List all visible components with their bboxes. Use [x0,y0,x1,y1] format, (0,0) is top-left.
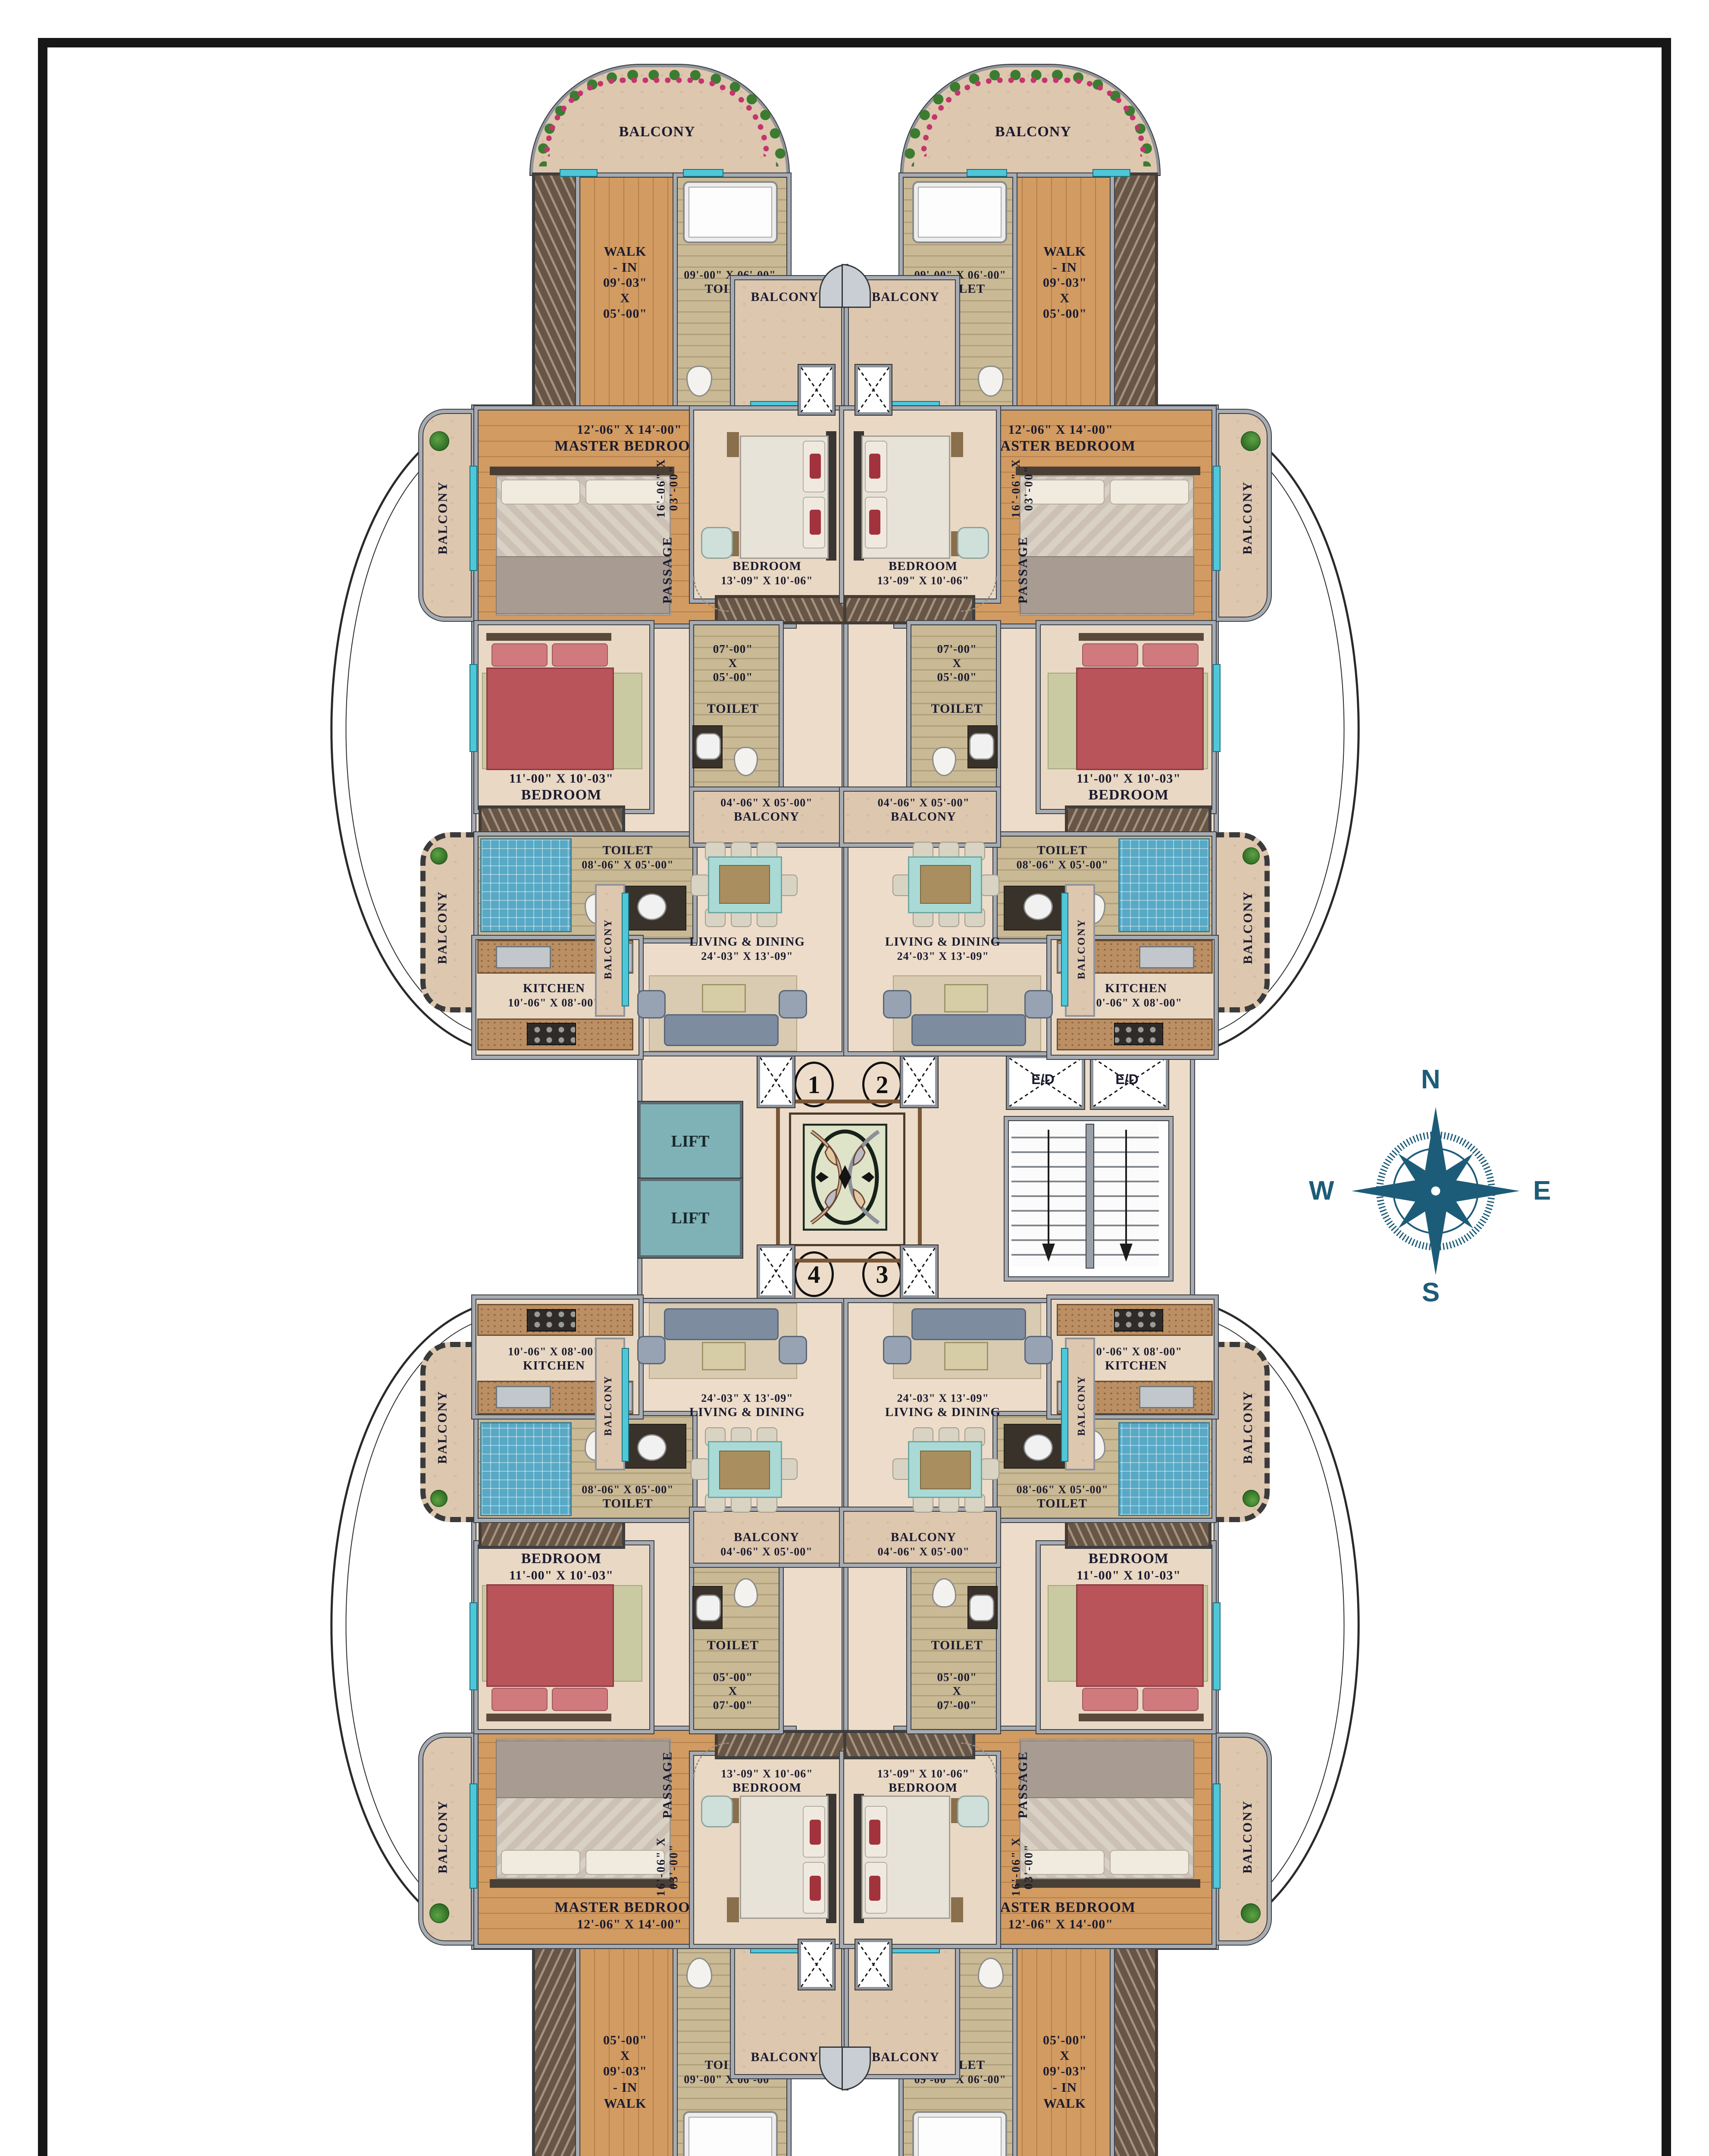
passage-label: PASSAGE 16'-06" X 03'-00" [648,1751,687,1915]
dining-table-top [920,1451,971,1489]
red-cushion [810,454,821,479]
red-cushion [869,1820,880,1845]
window-strip [622,1348,629,1462]
side-bedroom-label: 11'-00" X 10'-03" BEDROOM [1055,1550,1203,1584]
shaft-balcony-label: 04'-06" X 05'-00" BALCONY [851,793,996,827]
wardrobe [716,596,846,624]
walk-in-label: WALK - IN 09'-03" X 05'-00" [1022,2022,1108,2122]
tree-icon [429,431,449,451]
armchair-icon [637,990,666,1018]
axis-arch-half [842,264,871,308]
stove-icon [527,1309,576,1332]
sink-icon [637,1434,667,1461]
pillow [501,479,580,505]
side-balcony-upper-label: BALCONY [1233,479,1261,556]
tower-arch-balcony-label: BALCONY [968,122,1098,141]
floor-plan-canvas: 1 2 4 3 LIFT LIFT DN UP E/D E/D [0,0,1709,2156]
master-bed-throw [1020,556,1194,614]
tree-icon [1243,1490,1260,1507]
red-cushion [869,1876,880,1901]
center-toilet-name-label: TOILET [692,1636,773,1655]
master-bed-throw [496,1740,670,1798]
pillow [1082,1688,1138,1711]
bathtub-icon [683,2111,778,2156]
window-strip [470,1783,477,1889]
stove-icon [1114,1023,1163,1045]
dining-chair [691,874,710,896]
bedside-table [951,432,963,457]
wardrobe [479,1520,624,1548]
red-cushion [810,1876,821,1901]
red-cushion [810,1820,821,1845]
bedside-table [727,432,739,457]
window-strip [1213,664,1221,752]
shaft-duct-icon [798,1940,835,1990]
master-bed-headboard [490,467,674,475]
window-strip [1061,893,1068,1006]
master-bed-headboard [490,1879,674,1888]
armchair-icon [1024,1336,1053,1364]
shaft-duct-icon [855,365,892,415]
walk-in-wardrobe-strip [1111,173,1157,409]
window-strip [1213,466,1221,571]
living-balcony-label: BALCONY [598,910,619,987]
side-balcony-lower-label: BALCONY [429,1388,456,1466]
pillow [501,1850,580,1875]
window-strip [1213,1783,1221,1889]
walk-in-label: WALK - IN 09'-03" X 05'-00" [582,233,668,332]
tower-arch-balcony-label: BALCONY [592,122,722,141]
tree-icon [430,847,448,865]
window-strip [470,1602,477,1690]
unit-quadrant-4: BALCONY BALCONY BALCONY WALK - IN 09'-03… [0,1176,846,2156]
bed-headboard [486,1714,611,1721]
shower-mosaic [1118,1422,1210,1516]
side-toilet-label: TOILET 08'-06" X 05'-00" [570,1480,685,1514]
bed-headboard [1079,1714,1204,1721]
bathtub-icon [912,2111,1007,2156]
stove-icon [527,1023,576,1045]
kitchen-sink-icon [1139,1386,1194,1408]
sink-icon [637,893,667,920]
master-bed-headboard [1016,467,1200,475]
red-bed [1076,667,1204,770]
side-bedroom-label: 11'-00" X 10'-03" BEDROOM [1055,770,1203,805]
center-toilet-name-label: TOILET [692,699,773,718]
walk-in-wardrobe-strip [533,173,579,409]
dining-table-top [920,865,971,904]
window-strip [1213,1602,1221,1690]
axis-arch-half [842,2046,871,2090]
shower-mosaic [480,1422,572,1516]
living-dining-label: LIVING & DINING 24'-03" X 13'-09" [673,931,822,966]
living-balcony-label: BALCONY [1071,910,1092,987]
sink-icon [696,1595,721,1621]
sink-icon [969,1595,994,1621]
living-dining-label: LIVING & DINING 24'-03" X 13'-09" [868,1388,1017,1423]
walk-in-wardrobe-strip [1111,1946,1157,2156]
pillow [552,1688,608,1711]
pillow [1082,643,1138,667]
red-bed [1076,1584,1204,1687]
armchair-icon [779,990,807,1018]
pillow [1142,643,1199,667]
red-bed [486,1584,614,1687]
tree-icon [430,1490,448,1507]
center-toilet-dim-label: 07'-00" X 05'-00" [692,1657,773,1726]
center-toilet-name-label: TOILET [917,1636,998,1655]
window-strip [1092,169,1130,177]
side-balcony-upper-label: BALCONY [429,479,457,556]
sofa [664,1308,779,1340]
side-toilet-label: TOILET 08'-06" X 05'-00" [1005,840,1120,874]
window-strip [1061,1348,1068,1462]
sink-icon [969,733,994,760]
wardrobe [1066,1520,1211,1548]
passage-label: PASSAGE 16'-06" X 03'-00" [648,440,687,604]
wardrobe [844,1731,974,1758]
wardrobe [1066,806,1211,835]
side-balcony-upper-label: BALCONY [429,1798,457,1876]
armchair-icon [883,1336,911,1364]
armchair-icon [957,1796,989,1827]
wardrobe [844,596,974,624]
bed-headboard [486,633,611,641]
dining-table-top [719,865,770,904]
red-cushion [869,454,880,479]
window-strip [967,169,1007,177]
window-strip [470,466,477,571]
bed-headboard [1079,633,1204,641]
side-balcony-lower-label: BALCONY [1234,1388,1261,1466]
master-bed-headboard [1016,1879,1200,1888]
shaft-balcony-label: 04'-06" X 05'-00" BALCONY [694,793,839,827]
walk-in-label: WALK - IN 09'-03" X 05'-00" [1022,233,1108,332]
sofa [911,1014,1026,1046]
coffee-table [944,984,988,1012]
dining-chair [691,1458,710,1480]
shaft-balcony-label: 04'-06" X 05'-00" BALCONY [694,1527,839,1561]
dining-chair [980,874,999,896]
living-balcony-label: BALCONY [598,1367,619,1445]
center-toilet-dim-label: 07'-00" X 05'-00" [917,629,998,698]
living-balcony-label: BALCONY [1071,1367,1092,1445]
window-strip [622,893,629,1006]
side-balcony-lower-label: BALCONY [429,888,456,966]
bathtub-icon [912,181,1007,243]
coffee-table [702,1342,746,1370]
center-toilet-dim-label: 07'-00" X 05'-00" [692,629,773,698]
unit-quadrant-1: BALCONY BALCONY BALCONY WALK - IN 09'-03… [0,0,846,1178]
window-strip [470,664,477,752]
side-balcony-lower-label: BALCONY [1234,888,1261,966]
pillow [491,1688,548,1711]
unit-quadrant-3: BALCONY BALCONY BALCONY WALK - IN 09'-03… [844,1176,1690,2156]
armchair-icon [637,1336,666,1364]
pillow [552,643,608,667]
side-bedroom-label: 11'-00" X 10'-03" BEDROOM [487,770,635,805]
sofa [911,1308,1026,1340]
bedside-table [727,1897,739,1922]
kitchen-sink-icon [1139,946,1194,968]
sink-icon [696,733,721,760]
kitchen-sink-icon [496,1386,551,1408]
shaft-balcony-label: 04'-06" X 05'-00" BALCONY [851,1527,996,1561]
armchair-icon [779,1336,807,1364]
sofa [664,1014,779,1046]
walk-in-wardrobe-strip [533,1946,579,2156]
armchair-icon [701,527,733,559]
dining-chair [980,1458,999,1480]
dining-table-top [719,1451,770,1489]
tree-icon [429,1903,449,1923]
pillow [1110,1850,1189,1875]
shower-mosaic [1118,838,1210,932]
red-cushion [810,510,821,535]
walk-in-label: WALK - IN 09'-03" X 05'-00" [582,2022,668,2122]
center-toilet-name-label: TOILET [917,699,998,718]
unit-quadrant-2: BALCONY BALCONY BALCONY WALK - IN 09'-03… [844,0,1690,1178]
red-cushion [869,510,880,535]
tree-icon [1243,847,1260,865]
armchair-icon [957,527,989,559]
armchair-icon [701,1796,733,1827]
bathtub-icon [683,181,778,243]
master-bed-throw [1020,1740,1194,1798]
tree-icon [1241,1903,1261,1923]
wardrobe [479,806,624,835]
side-toilet-label: TOILET 08'-06" X 05'-00" [570,840,685,874]
window-strip [560,169,598,177]
pillow [1142,1688,1199,1711]
wardrobe [716,1731,846,1758]
shaft-duct-icon [798,365,835,415]
bedside-table [951,1897,963,1922]
side-bedroom-label: 11'-00" X 10'-03" BEDROOM [487,1550,635,1584]
passage-label: PASSAGE 16'-06" X 03'-00" [1003,1751,1042,1915]
shaft-duct-icon [855,1940,892,1990]
living-dining-label: LIVING & DINING 24'-03" X 13'-09" [673,1388,822,1423]
master-bed-throw [496,556,670,614]
window-strip [683,169,723,177]
side-balcony-upper-label: BALCONY [1233,1798,1261,1876]
side-toilet-label: TOILET 08'-06" X 05'-00" [1005,1480,1120,1514]
sink-icon [1024,893,1053,920]
tree-icon [1241,431,1261,451]
coffee-table [944,1342,988,1370]
pillow [1110,479,1189,505]
sink-icon [1024,1434,1053,1461]
pillow [491,643,548,667]
passage-label: PASSAGE 16'-06" X 03'-00" [1003,440,1042,604]
coffee-table [702,984,746,1012]
shower-mosaic [480,838,572,932]
kitchen-sink-icon [496,946,551,968]
red-bed [486,667,614,770]
center-toilet-dim-label: 07'-00" X 05'-00" [917,1657,998,1726]
armchair-icon [883,990,911,1018]
stove-icon [1114,1309,1163,1332]
armchair-icon [1024,990,1053,1018]
living-dining-label: LIVING & DINING 24'-03" X 13'-09" [868,931,1017,966]
